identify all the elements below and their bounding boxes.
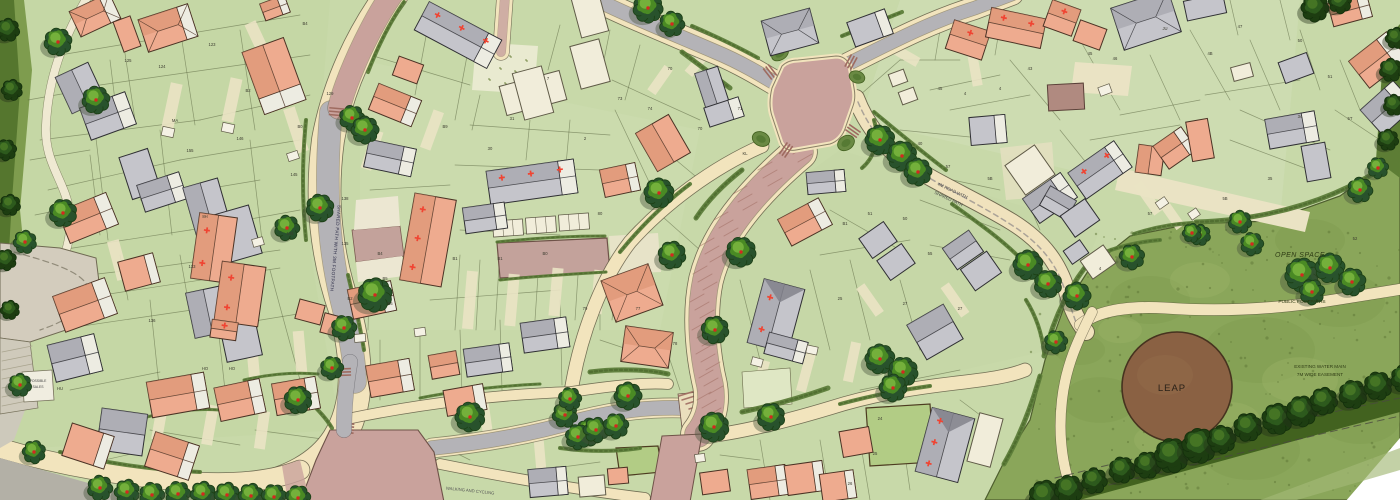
svg-text:EXISTING WATER MAIN: EXISTING WATER MAIN bbox=[1294, 364, 1346, 369]
svg-text:80: 80 bbox=[598, 211, 603, 216]
svg-text:POSSIBLE: POSSIBLE bbox=[30, 379, 48, 383]
svg-text:35: 35 bbox=[1268, 176, 1273, 181]
svg-text:HO: HO bbox=[202, 366, 209, 371]
svg-text:30: 30 bbox=[488, 146, 493, 151]
svg-text:138: 138 bbox=[342, 196, 350, 201]
svg-text:B4: B4 bbox=[377, 251, 383, 256]
svg-text:MA: MA bbox=[172, 118, 178, 123]
svg-text:123: 123 bbox=[209, 42, 217, 47]
svg-text:47: 47 bbox=[1238, 24, 1243, 29]
svg-text:B1: B1 bbox=[497, 256, 503, 261]
svg-text:31: 31 bbox=[510, 116, 515, 121]
svg-text:45: 45 bbox=[1088, 51, 1093, 56]
svg-text:25: 25 bbox=[838, 296, 843, 301]
svg-text:B4: B4 bbox=[302, 21, 308, 26]
svg-text:B6: B6 bbox=[387, 301, 393, 306]
svg-text:46: 46 bbox=[1113, 56, 1118, 61]
svg-text:KL: KL bbox=[742, 151, 748, 156]
svg-text:43: 43 bbox=[1028, 66, 1033, 71]
svg-text:57: 57 bbox=[946, 164, 951, 169]
svg-text:145: 145 bbox=[291, 172, 299, 177]
svg-text:50: 50 bbox=[903, 216, 908, 221]
svg-text:34: 34 bbox=[1298, 114, 1303, 119]
svg-text:40: 40 bbox=[918, 141, 923, 146]
svg-text:146: 146 bbox=[237, 136, 245, 141]
svg-text:129: 129 bbox=[327, 91, 335, 96]
svg-text:24: 24 bbox=[878, 416, 883, 421]
svg-text:133: 133 bbox=[189, 264, 197, 269]
svg-text:B1: B1 bbox=[842, 221, 848, 226]
svg-text:73: 73 bbox=[618, 96, 623, 101]
svg-text:55: 55 bbox=[928, 251, 933, 256]
svg-text:25: 25 bbox=[873, 451, 878, 456]
svg-text:125: 125 bbox=[125, 58, 133, 63]
svg-text:78: 78 bbox=[673, 341, 678, 346]
svg-text:SALES: SALES bbox=[33, 385, 45, 389]
svg-text:79: 79 bbox=[583, 306, 588, 311]
svg-text:77: 77 bbox=[636, 306, 641, 311]
svg-text:136: 136 bbox=[149, 318, 157, 323]
svg-text:HO: HO bbox=[229, 366, 236, 371]
svg-text:135: 135 bbox=[342, 241, 350, 246]
svg-text:26: 26 bbox=[848, 481, 853, 486]
svg-text:5T: 5T bbox=[1348, 116, 1353, 121]
svg-text:74: 74 bbox=[648, 106, 653, 111]
svg-text:155: 155 bbox=[187, 148, 195, 153]
svg-text:B2: B2 bbox=[245, 88, 251, 93]
svg-text:B0: B0 bbox=[542, 251, 548, 256]
svg-text:71: 71 bbox=[738, 106, 743, 111]
svg-text:OPEN SPACE: OPEN SPACE bbox=[1275, 252, 1325, 259]
svg-text:5B: 5B bbox=[987, 176, 992, 181]
svg-text:JU: JU bbox=[1162, 26, 1167, 31]
svg-text:27: 27 bbox=[903, 301, 908, 306]
svg-text:5B: 5B bbox=[1222, 196, 1227, 201]
svg-text:144: 144 bbox=[287, 231, 295, 236]
svg-text:52: 52 bbox=[1353, 236, 1358, 241]
svg-text:8H: 8H bbox=[202, 214, 207, 219]
svg-text:7M WIDE EASEMENT: 7M WIDE EASEMENT bbox=[1297, 372, 1343, 377]
svg-text:B5: B5 bbox=[382, 276, 388, 281]
svg-text:B9: B9 bbox=[442, 124, 448, 129]
svg-text:51: 51 bbox=[868, 211, 873, 216]
svg-text:LEAP: LEAP bbox=[1158, 383, 1186, 394]
svg-text:B1: B1 bbox=[452, 256, 458, 261]
svg-text:70: 70 bbox=[668, 66, 673, 71]
svg-text:B0: B0 bbox=[297, 124, 303, 129]
svg-text:27: 27 bbox=[958, 306, 963, 311]
svg-text:51: 51 bbox=[1328, 74, 1333, 79]
svg-text:45: 45 bbox=[938, 86, 943, 91]
svg-text:70: 70 bbox=[698, 126, 703, 131]
svg-text:124: 124 bbox=[159, 64, 167, 69]
svg-text:HU: HU bbox=[57, 386, 63, 391]
svg-text:PUBLIC FOOTPATHS: PUBLIC FOOTPATHS bbox=[1278, 299, 1325, 305]
svg-text:57: 57 bbox=[1148, 211, 1153, 216]
svg-text:4B: 4B bbox=[1207, 51, 1212, 56]
svg-text:B2: B2 bbox=[347, 296, 353, 301]
svg-text:50: 50 bbox=[1298, 38, 1303, 43]
